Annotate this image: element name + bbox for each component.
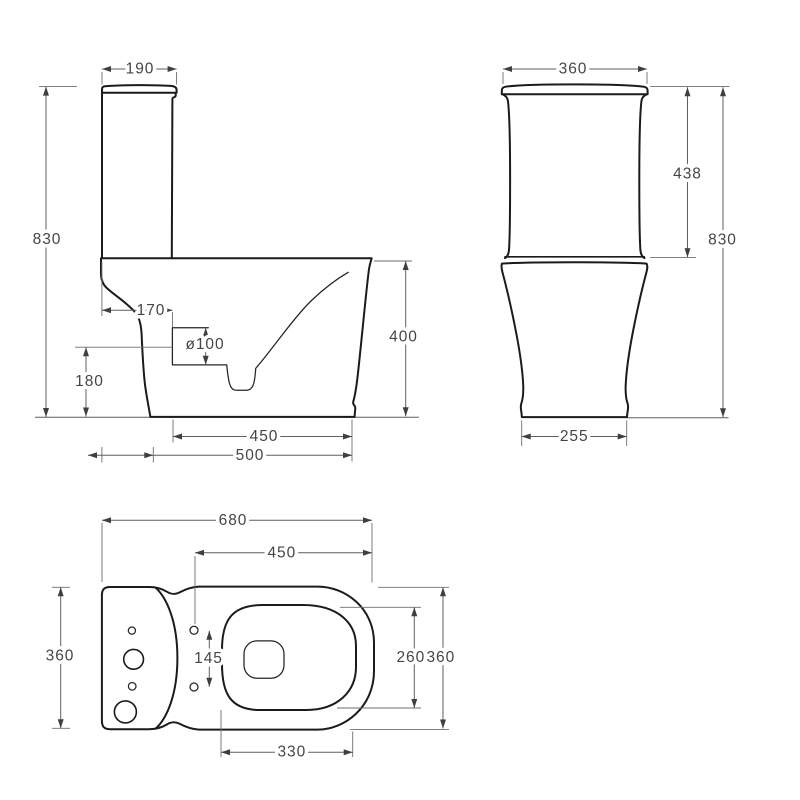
top-fixing-hole-upper <box>190 626 198 634</box>
dim-front-overall-height-label: 830 <box>708 232 737 249</box>
dim-side-bowl-depth-label: 450 <box>250 428 279 445</box>
dim-side-bowl-height: 400 <box>374 261 418 416</box>
dim-top-seat-length: 330 <box>221 710 353 760</box>
dim-side-trap-height: 180 <box>75 347 172 416</box>
dim-side-overall-height-label: 830 <box>33 231 62 248</box>
dim-side-tank-depth-label: 190 <box>126 61 155 78</box>
dim-front-tank-height-label: 438 <box>673 166 702 183</box>
dim-top-seat-inner-width: 260 <box>337 607 425 708</box>
side-tank-outline <box>102 93 176 258</box>
dim-side-tank-depth: 190 <box>102 61 177 85</box>
dim-side-trap-diameter: ø100 <box>185 328 224 365</box>
technical-drawing-page: 190 830 170 ø100 180 <box>0 0 800 800</box>
dim-top-tank-width-label: 360 <box>46 647 75 664</box>
dim-top-overall-width-label: 360 <box>426 649 455 666</box>
dim-side-rim-to-trap-label: 170 <box>137 302 166 319</box>
top-seat-outline <box>222 605 356 710</box>
side-tank-lid-outline <box>102 85 177 93</box>
top-tank-inlet-hole <box>114 701 136 723</box>
side-view: 190 830 170 ø100 180 <box>33 61 419 464</box>
front-view: 360 438 830 255 <box>501 61 736 447</box>
toilet-dimension-drawing: 190 830 170 ø100 180 <box>0 0 800 800</box>
dim-top-bowl-length-label: 450 <box>267 544 296 561</box>
dim-side-overall-depth-label: 500 <box>236 447 265 464</box>
front-tank-lid-outline <box>502 84 648 94</box>
dim-front-overall-height: 830 <box>708 87 737 417</box>
dim-top-fixing-hole-spacing-label: 145 <box>194 650 223 667</box>
dim-top-overall-length: 680 <box>102 512 372 583</box>
top-tank-small-hole-upper <box>128 627 135 634</box>
dim-top-fixing-hole-spacing: 145 <box>194 631 223 687</box>
top-view: 680 450 360 145 260 <box>46 512 455 761</box>
top-tank-front-edge <box>156 588 178 729</box>
side-bowl-outline <box>101 258 372 417</box>
top-fixing-hole-lower <box>190 683 198 691</box>
dim-top-tank-width: 360 <box>46 587 75 728</box>
dim-top-overall-length-label: 680 <box>219 512 248 529</box>
dim-top-seat-length-label: 330 <box>277 743 306 760</box>
dim-front-tank-width-label: 360 <box>559 61 588 78</box>
dim-top-bowl-length: 450 <box>195 544 372 624</box>
dim-side-trap-height-label: 180 <box>75 373 104 390</box>
dim-side-overall-depth: 500 <box>88 447 352 464</box>
dim-side-bowl-height-label: 400 <box>389 328 418 345</box>
front-tank-outline <box>502 94 647 258</box>
top-bowl-opening <box>244 641 284 678</box>
dim-side-rim-to-trap: 170 <box>102 262 173 327</box>
dim-front-tank-width: 360 <box>503 61 647 85</box>
dim-front-base-width: 255 <box>522 421 627 447</box>
side-bowl-inner-curve <box>258 272 349 366</box>
front-bowl-outline <box>501 262 647 417</box>
top-tank-small-hole-lower <box>128 683 136 691</box>
dim-top-seat-inner-width-label: 260 <box>396 649 425 666</box>
dim-front-base-width-label: 255 <box>560 428 589 445</box>
top-tank-flush-valve <box>124 649 144 669</box>
dim-side-overall-height: 830 <box>33 87 77 417</box>
dim-side-trap-diameter-label: ø100 <box>185 336 224 353</box>
